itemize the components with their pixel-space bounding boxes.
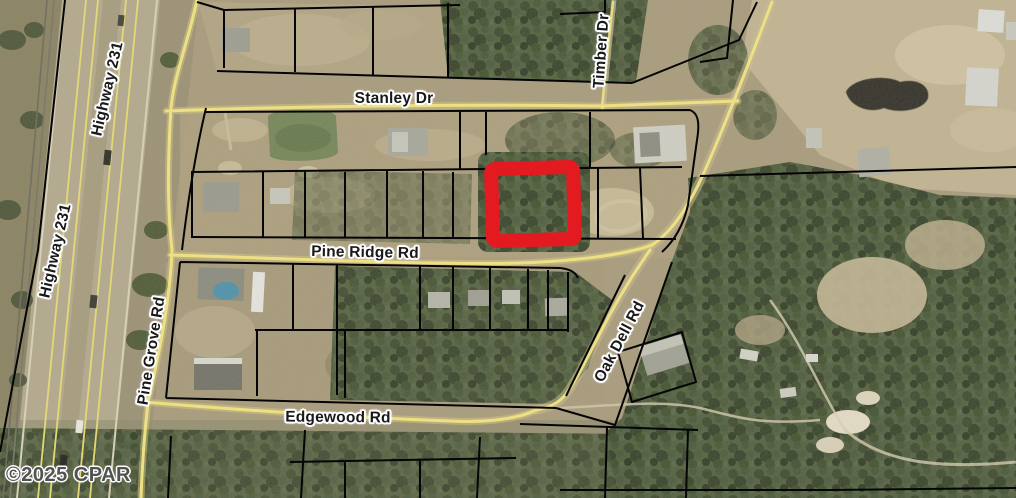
photo-grain	[0, 0, 1016, 498]
road-label-stanley-dr: Stanley Dr	[355, 90, 434, 108]
parcel-map-image: Highway 231 Highway 231 Pine Grove Rd St…	[0, 0, 1016, 498]
aerial-imagery	[0, 0, 1016, 498]
road-label-edgewood-rd: Edgewood Rd	[285, 409, 391, 428]
road-label-pine-ridge-rd: Pine Ridge Rd	[311, 243, 419, 263]
copyright-watermark: ©2025 CPAR	[6, 464, 131, 487]
